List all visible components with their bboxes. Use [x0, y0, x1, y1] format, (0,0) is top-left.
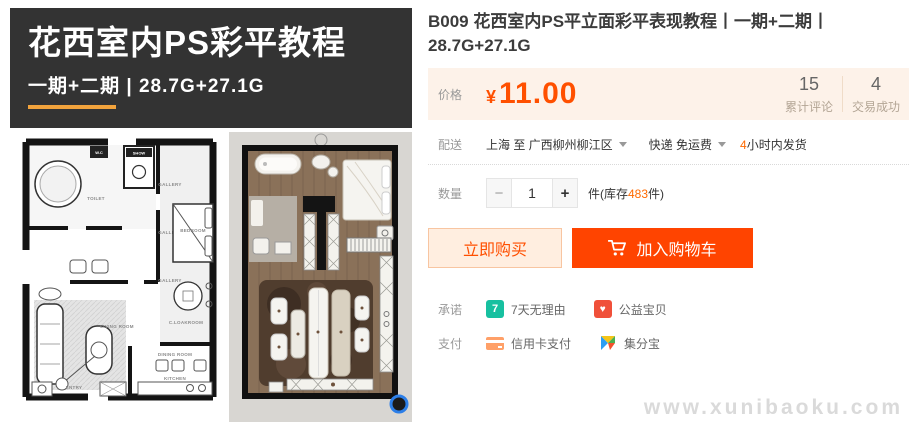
delivery-row: 配送 上海 至 广西柳州柳江区 快递 免运费 4小时内发货 — [428, 136, 909, 153]
caret-down-icon — [718, 142, 726, 151]
quantity-stepper: − + — [486, 178, 578, 208]
caret-down-icon — [619, 142, 627, 151]
stock-count: 483 — [628, 187, 648, 201]
image-zoom-control — [391, 396, 407, 412]
promise-row: 承诺 7 7天无理由 ♥ 公益宝贝 — [428, 300, 909, 318]
promise-7day[interactable]: 7 7天无理由 — [486, 300, 566, 318]
deals-count: 4 — [843, 74, 909, 95]
credit-card-icon — [486, 337, 504, 350]
reviews-label: 累计评论 — [776, 98, 842, 115]
plan-label-show: SHOW — [133, 151, 146, 156]
plan-label-kitchen: KITCHEN — [164, 376, 186, 381]
plan-label-bedroom: BEDROOM — [180, 228, 206, 233]
jifenbao-pinwheel-icon — [599, 334, 617, 352]
add-to-cart-label: 加入购物车 — [636, 236, 716, 260]
ship-time-number: 4 — [740, 138, 747, 152]
plan-label-gallery-3: GALLERY — [158, 278, 181, 283]
buy-now-button[interactable]: 立即购买 — [428, 228, 562, 268]
price-label: 价格 — [428, 86, 486, 103]
delivery-route: 上海 至 广西柳州柳江区 — [486, 136, 613, 153]
promise-charity[interactable]: ♥ 公益宝贝 — [594, 300, 667, 318]
payment-label: 支付 — [428, 335, 486, 352]
payment-credit-card-text: 信用卡支付 — [511, 335, 571, 352]
deals-stat[interactable]: 4 交易成功 — [843, 74, 909, 115]
banner-underline — [28, 105, 116, 109]
product-page: 花西室内PS彩平教程 一期+二期 | 28.7G+27.1G — [0, 0, 909, 422]
product-info-panel: B009 花西室内PS平立面彩平表现教程丨一期+二期丨28.7G+27.1G 价… — [428, 10, 909, 352]
stock-suffix: 件) — [648, 187, 664, 201]
stock-prefix: 件(库存 — [588, 187, 628, 201]
product-title: B009 花西室内PS平立面彩平表现教程丨一期+二期丨28.7G+27.1G — [428, 10, 902, 58]
quantity-label: 数量 — [428, 185, 486, 202]
action-buttons: 立即购买 加入购物车 — [428, 228, 909, 268]
floorplan-bw-image[interactable]: W.C SHOW TOILET LIVING ROOM — [10, 132, 225, 408]
plan-label-gallery-1: GALLERY — [158, 182, 181, 187]
delivery-location-dropdown[interactable]: 上海 至 广西柳州柳江区 — [486, 136, 627, 153]
deals-label: 交易成功 — [843, 98, 909, 115]
plan-label-wc: W.C — [95, 150, 103, 155]
ship-time-text: 小时内发货 — [747, 138, 807, 152]
plan-label-toilet: TOILET — [87, 196, 105, 201]
ship-time: 4小时内发货 — [740, 136, 807, 153]
product-image-banner: 花西室内PS彩平教程 一期+二期 | 28.7G+27.1G — [10, 8, 412, 128]
price-amount: 11.00 — [499, 77, 577, 111]
stats-section: 15 累计评论 4 交易成功 — [776, 74, 909, 115]
quantity-input[interactable] — [512, 178, 552, 208]
reviews-stat[interactable]: 15 累计评论 — [776, 74, 842, 115]
shipping-text: 快递 免运费 — [649, 136, 712, 153]
plan-label-entry: ENTRY — [66, 385, 83, 390]
product-image-panel[interactable]: 花西室内PS彩平教程 一期+二期 | 28.7G+27.1G — [10, 8, 412, 422]
floorplan-color-image[interactable] — [229, 132, 412, 422]
quantity-increase-button[interactable]: + — [552, 178, 578, 208]
payment-row: 支付 信用卡支付 集分宝 — [428, 334, 909, 352]
charity-heart-icon: ♥ — [594, 300, 612, 318]
quantity-decrease-button[interactable]: − — [486, 178, 512, 208]
add-to-cart-button[interactable]: 加入购物车 — [572, 228, 753, 268]
divider — [428, 164, 909, 165]
delivery-label: 配送 — [428, 136, 486, 153]
price-section: 价格 ¥ 11.00 15 累计评论 4 交易成功 — [428, 68, 909, 120]
banner-title: 花西室内PS彩平教程 — [28, 24, 412, 62]
reviews-count: 15 — [776, 74, 842, 95]
plan-label-cloak: C.LOAKROOM — [169, 320, 203, 325]
plan-label-living: LIVING ROOM — [100, 324, 134, 329]
cart-icon — [608, 239, 627, 257]
plan-label-dining: DINING ROOM — [158, 352, 192, 357]
payment-jifenbao-text: 集分宝 — [624, 335, 660, 352]
payment-credit-card[interactable]: 信用卡支付 — [486, 335, 571, 352]
promise-7day-text: 7天无理由 — [511, 301, 566, 318]
payment-jifenbao[interactable]: 集分宝 — [599, 334, 660, 352]
shipping-method-dropdown[interactable]: 快递 免运费 — [649, 136, 726, 153]
quantity-row: 数量 − + 件(库存483件) — [428, 178, 909, 208]
price-currency: ¥ — [486, 87, 496, 108]
promise-charity-text: 公益宝贝 — [619, 301, 667, 318]
watermark: www.xunibaoku.com — [644, 396, 903, 420]
banner-subtitle: 一期+二期 | 28.7G+27.1G — [28, 71, 412, 98]
7-day-return-icon: 7 — [486, 300, 504, 318]
promise-label: 承诺 — [428, 301, 486, 318]
stock-info: 件(库存483件) — [588, 185, 664, 202]
